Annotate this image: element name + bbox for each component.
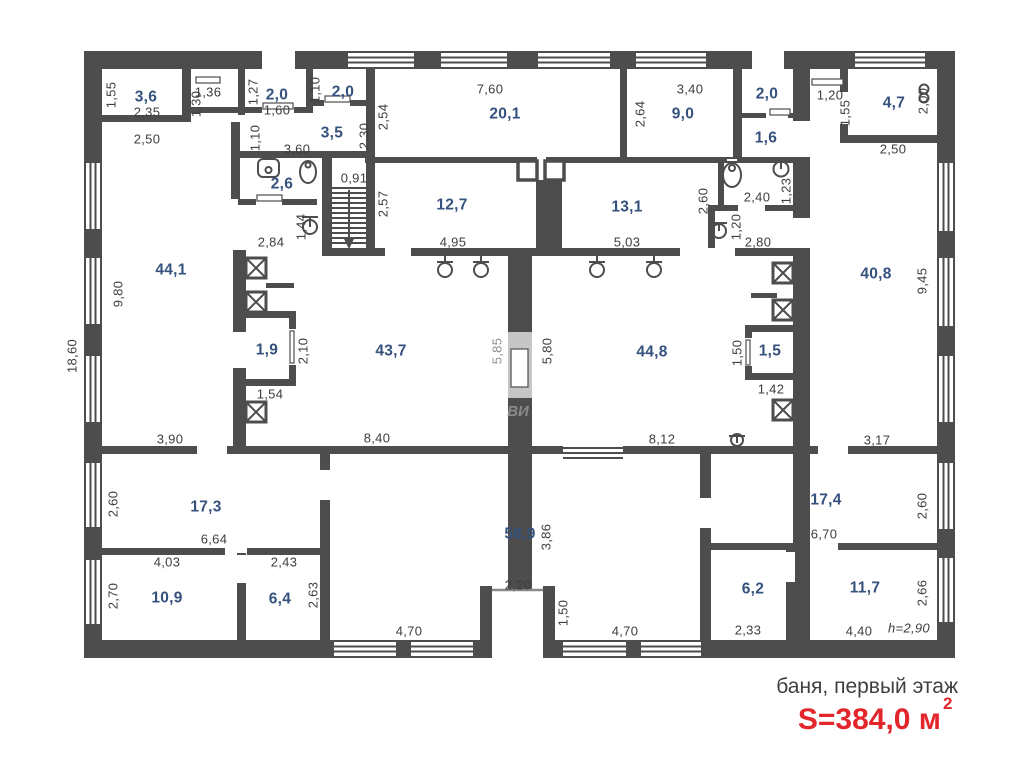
shower-icon (473, 256, 489, 277)
shower-icon (589, 256, 605, 277)
window (538, 53, 610, 67)
shower-icon (437, 256, 453, 277)
room-label-20-1: 20,1 (489, 106, 520, 123)
sink-icon (258, 159, 279, 177)
window (86, 258, 100, 324)
dim-label: 9,45 (915, 268, 930, 295)
window (939, 258, 953, 326)
window (334, 642, 396, 656)
window (563, 642, 626, 656)
room-label-44-8: 44,8 (636, 344, 667, 361)
toilet-icon (723, 158, 741, 187)
dim-label: 1,10 (308, 77, 323, 104)
dim-label: 9,80 (111, 281, 126, 308)
window (86, 463, 100, 527)
vent-icon (246, 258, 266, 278)
total-area-value: S=384,0 м (798, 703, 941, 736)
dim-label: 6,64 (201, 532, 228, 547)
window (939, 163, 953, 231)
dim-label: 4,03 (154, 555, 181, 570)
door-leaf (511, 349, 528, 387)
dim-label: 1,42 (758, 382, 785, 397)
room-label-44-1: 44,1 (155, 262, 186, 279)
dim-label: 2,54 (376, 104, 391, 131)
dim-label: 2,20 (505, 578, 532, 593)
dim-label: 1,55 (104, 82, 119, 109)
dim-label: 3,86 (539, 524, 554, 551)
dim-label: 0,91 (341, 171, 368, 186)
toilet-icon (300, 161, 316, 183)
room-label-2-0-b: 2,0 (332, 84, 354, 101)
dim-label: 8,40 (364, 431, 391, 446)
dim-label: 3,40 (677, 82, 704, 97)
room-label-1-9: 1,9 (256, 342, 279, 359)
title-block: баня, первый этаж S=384,0 м 2 (776, 675, 958, 736)
vent-icon (773, 400, 793, 420)
dim-label: 4,70 (612, 624, 639, 639)
dim-label: 18,60 (65, 339, 80, 373)
dim-label: 5,85 (490, 338, 505, 365)
dim-label: 2,60 (696, 188, 711, 215)
window (441, 53, 507, 67)
dim-label: 5,03 (614, 235, 641, 250)
room-label-6-2: 6,2 (742, 581, 764, 598)
room-label-9-0: 9,0 (672, 106, 694, 123)
room-label-17-3: 17,3 (190, 499, 221, 516)
dim-label: 1,44 (294, 214, 309, 241)
window (855, 53, 925, 67)
window (86, 356, 100, 422)
dim-label: 1,20 (729, 214, 744, 241)
floor-plan-drawing: ВИ 3,6 2,0 2,0 3,5 2,6 20,1 9,0 12,7 13,… (0, 0, 1024, 769)
room-label-3-6: 3,6 (135, 89, 158, 106)
room-label-6-4: 6,4 (269, 591, 292, 608)
dim-label: 1,10 (248, 125, 263, 152)
dim-label: 2,30 (357, 123, 372, 150)
dim-label: 1,55 (838, 100, 853, 127)
window (641, 642, 701, 656)
window (411, 642, 473, 656)
window (939, 356, 953, 422)
dim-label: 4,95 (440, 235, 467, 250)
room-label-1-5: 1,5 (759, 343, 782, 360)
dim-label: 2,70 (106, 583, 121, 610)
dim-label: 2,00 (916, 88, 931, 115)
window (86, 560, 100, 624)
dim-label: 2,80 (745, 235, 772, 250)
dim-label: 1,50 (556, 600, 571, 627)
dim-label: 2,50 (880, 142, 907, 157)
dim-label: 7,60 (477, 82, 504, 97)
dim-label: 4,40 (846, 624, 873, 639)
window (348, 53, 414, 67)
dim-label: 1,23 (779, 178, 794, 205)
window (86, 163, 100, 229)
room-label-17-4: 17,4 (810, 492, 841, 509)
dim-label: 2,10 (296, 338, 311, 365)
room-label-43-7: 43,7 (375, 343, 406, 360)
window (636, 53, 706, 67)
vent-icon (246, 402, 266, 422)
room-label-3-5: 3,5 (321, 125, 344, 142)
dim-label: 6,70 (811, 527, 838, 542)
room-label-13-1: 13,1 (611, 199, 642, 216)
dim-label: 5,80 (540, 338, 555, 365)
dim-label: 2,57 (376, 191, 391, 218)
room-label-10-9: 10,9 (151, 590, 182, 607)
dim-label: 1,30 (189, 91, 204, 118)
dim-label: 2,64 (633, 101, 648, 128)
column-niches (518, 161, 564, 180)
ceiling-height-label: h=2,90 (888, 621, 930, 636)
plan-caption: баня, первый этаж (776, 675, 958, 698)
shower-icon (646, 256, 662, 277)
dim-label: 2,66 (915, 580, 930, 607)
staircase (332, 188, 366, 249)
vent-icon (773, 263, 793, 283)
total-area-superscript: 2 (943, 694, 952, 713)
dim-label: 2,50 (134, 132, 161, 147)
room-label-1-6: 1,6 (755, 130, 778, 147)
center-doorway (508, 332, 532, 398)
washbasin-icon (772, 161, 790, 177)
dim-label: 3,90 (157, 432, 184, 447)
dim-label: 2,84 (258, 235, 285, 250)
dim-label: 3,60 (284, 142, 311, 157)
dim-label: 2,40 (744, 190, 771, 205)
dim-label: 2,63 (306, 582, 321, 609)
dim-label: 1,50 (730, 340, 745, 367)
dim-label: 2,60 (106, 491, 121, 518)
dim-label: 1,27 (246, 79, 261, 106)
vent-icon (773, 300, 793, 320)
drain-icon (729, 434, 745, 446)
dim-label: 2,33 (735, 623, 762, 638)
window (939, 463, 953, 529)
dim-label: 3,17 (864, 433, 891, 448)
dim-label: 1,60 (264, 103, 291, 118)
floor-plan-page: ВИ 3,6 2,0 2,0 3,5 2,6 20,1 9,0 12,7 13,… (0, 0, 1024, 769)
vent-icon (246, 292, 266, 312)
dim-label: 2,35 (134, 105, 161, 120)
dim-label: 2,60 (915, 493, 930, 520)
room-label-2-6: 2,6 (271, 176, 294, 193)
room-label-2-0-c: 2,0 (756, 86, 778, 103)
window (939, 558, 953, 622)
dim-label: 1,54 (257, 387, 284, 402)
room-label-2-0-a: 2,0 (266, 87, 288, 104)
room-label-40-8: 40,8 (860, 266, 891, 283)
dim-label: 2,43 (271, 555, 298, 570)
room-label-4-7: 4,7 (883, 95, 905, 112)
room-label-58-9: 58,9 (504, 526, 535, 543)
watermark-text: ВИ (507, 403, 530, 420)
dim-label: 4,70 (396, 624, 423, 639)
room-label-11-7: 11,7 (850, 580, 881, 597)
dim-label: 8,12 (649, 432, 676, 447)
room-label-12-7: 12,7 (436, 197, 467, 214)
interior-window (563, 445, 623, 461)
